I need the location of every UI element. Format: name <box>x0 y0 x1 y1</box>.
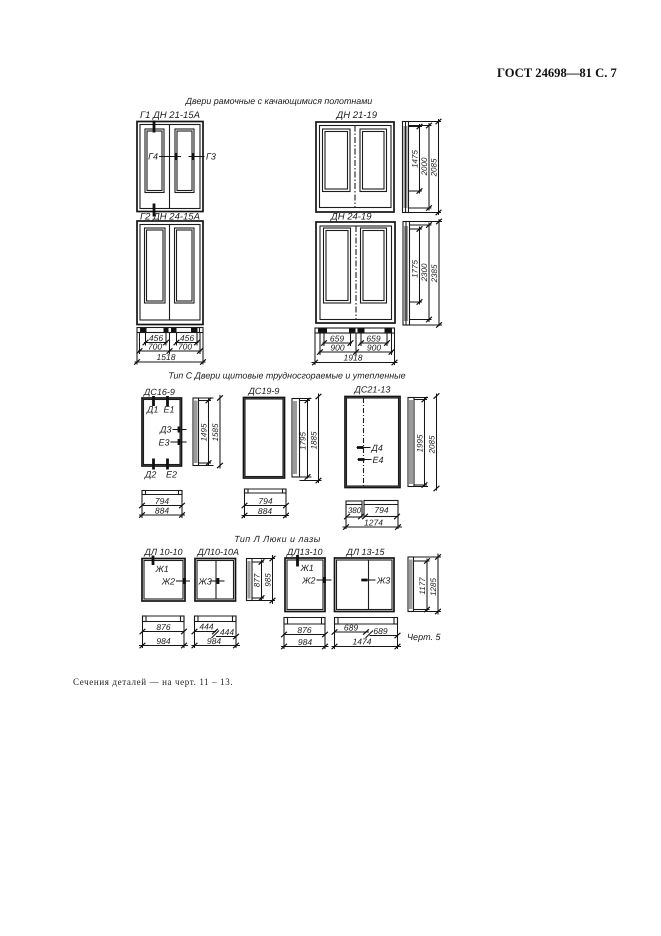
svg-text:1885: 1885 <box>310 431 319 449</box>
svg-text:884: 884 <box>258 506 272 516</box>
svg-text:1775: 1775 <box>411 260 420 278</box>
svg-text:Г4: Г4 <box>148 152 158 162</box>
svg-text:794: 794 <box>155 496 169 506</box>
svg-text:900: 900 <box>367 343 381 353</box>
svg-text:Ж1: Ж1 <box>155 564 169 574</box>
svg-text:ДЛ10-10А: ДЛ10-10А <box>197 547 240 557</box>
svg-text:380: 380 <box>348 506 362 515</box>
svg-text:794: 794 <box>258 496 272 506</box>
svg-text:Д1: Д1 <box>146 405 158 415</box>
svg-text:1495: 1495 <box>200 423 209 441</box>
svg-text:Черт. 5: Черт. 5 <box>407 632 441 642</box>
svg-text:ДС16-9: ДС16-9 <box>143 387 175 397</box>
svg-text:ДЛ13-10: ДЛ13-10 <box>286 547 323 557</box>
svg-text:689: 689 <box>344 623 358 633</box>
svg-text:ДС19-9: ДС19-9 <box>248 386 280 396</box>
svg-text:Д4: Д4 <box>371 443 383 453</box>
svg-text:ДС21-13: ДС21-13 <box>354 385 391 395</box>
svg-text:ДН 21-19: ДН 21-19 <box>336 110 378 121</box>
svg-text:700: 700 <box>178 342 192 352</box>
svg-text:Г1 ДН 21-15А: Г1 ДН 21-15А <box>140 110 200 121</box>
svg-text:689: 689 <box>373 626 387 636</box>
svg-text:ДН 24-19: ДН 24-19 <box>330 212 372 223</box>
svg-text:Ж2: Ж2 <box>301 576 315 586</box>
svg-text:1474: 1474 <box>353 637 372 647</box>
svg-text:Двери рамочные с качающимися п: Двери рамочные с качающимися полотнами <box>185 96 373 106</box>
svg-text:1274: 1274 <box>364 518 383 528</box>
svg-text:Ж1: Ж1 <box>300 563 314 573</box>
svg-text:985: 985 <box>264 573 273 587</box>
svg-text:1475: 1475 <box>411 150 420 168</box>
svg-text:ДЛ 10-10: ДЛ 10-10 <box>144 547 183 557</box>
svg-text:900: 900 <box>330 343 344 353</box>
svg-text:Е1: Е1 <box>164 405 175 415</box>
svg-text:2085: 2085 <box>428 435 437 454</box>
svg-text:Е3: Е3 <box>158 438 169 448</box>
svg-text:794: 794 <box>374 505 388 515</box>
svg-text:2385: 2385 <box>430 264 439 283</box>
svg-text:Г3: Г3 <box>206 152 216 162</box>
svg-text:444: 444 <box>199 622 213 632</box>
svg-text:1918: 1918 <box>344 353 363 363</box>
svg-text:2300: 2300 <box>420 263 429 282</box>
svg-text:984: 984 <box>207 636 221 646</box>
svg-text:Е4: Е4 <box>373 455 384 465</box>
svg-text:1995: 1995 <box>416 434 425 452</box>
svg-text:2085: 2085 <box>430 158 439 177</box>
svg-text:Ж3: Ж3 <box>376 576 390 586</box>
svg-text:Тип С Двери щитовые трудносг: Тип С Двери щитовые трудносгораемые и ут… <box>168 371 405 381</box>
svg-text:Д3: Д3 <box>159 425 171 435</box>
svg-text:2000: 2000 <box>420 157 429 176</box>
svg-text:ДЛ 13-15: ДЛ 13-15 <box>346 547 386 557</box>
svg-text:984: 984 <box>156 636 170 646</box>
svg-text:Е2: Е2 <box>166 470 177 480</box>
svg-text:1795: 1795 <box>299 432 308 450</box>
svg-text:Ж3: Ж3 <box>198 577 212 587</box>
svg-text:876: 876 <box>156 622 170 632</box>
svg-text:876: 876 <box>297 625 311 635</box>
svg-text:Тип Л Люки и лазы: Тип Л Люки и лазы <box>234 534 321 544</box>
svg-text:Д2: Д2 <box>144 470 156 480</box>
svg-text:884: 884 <box>155 506 169 516</box>
svg-text:1285: 1285 <box>429 578 438 596</box>
svg-text:984: 984 <box>298 637 312 647</box>
svg-text:Ж2: Ж2 <box>161 577 175 587</box>
svg-text:444: 444 <box>220 627 234 637</box>
svg-text:1585: 1585 <box>211 423 220 441</box>
svg-text:1177: 1177 <box>418 577 427 595</box>
svg-text:1518: 1518 <box>157 352 176 362</box>
svg-text:700: 700 <box>148 342 162 352</box>
svg-text:877: 877 <box>253 573 262 587</box>
